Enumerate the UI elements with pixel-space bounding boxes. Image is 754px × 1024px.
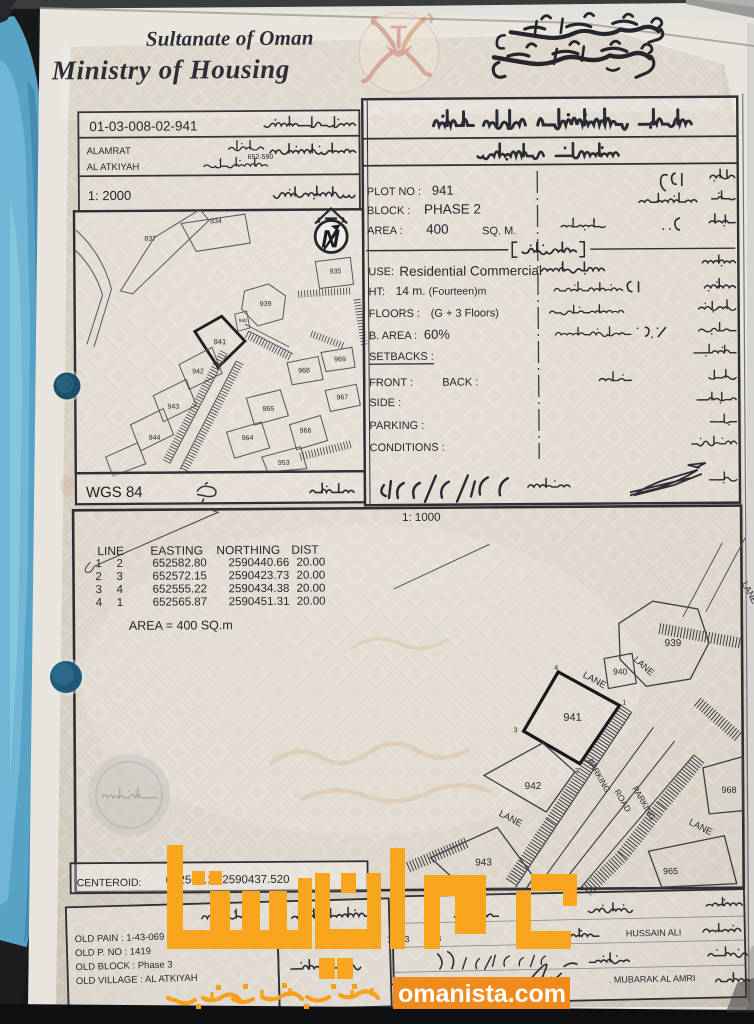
svg-text:652565.11,2590437.520: 652565.11,2590437.520 <box>166 874 290 887</box>
svg-text:PLOT NO :: PLOT NO : <box>367 186 421 198</box>
svg-text:652582.80: 652582.80 <box>152 557 206 569</box>
svg-text:935: 935 <box>330 268 342 275</box>
svg-text:2590434.38: 2590434.38 <box>229 583 290 595</box>
svg-text:968: 968 <box>298 368 310 375</box>
svg-text:941: 941 <box>432 183 454 198</box>
svg-text:SIDE :: SIDE : <box>369 397 401 409</box>
svg-text:FLOORS :: FLOORS : <box>369 308 420 320</box>
svg-text:PHASE 2: PHASE 2 <box>424 201 481 216</box>
svg-text:CONDITIONS :: CONDITIONS : <box>370 442 445 455</box>
svg-text:652565.87: 652565.87 <box>153 596 207 608</box>
svg-text:AREA = 400 SQ.m: AREA = 400 SQ.m <box>129 618 233 633</box>
svg-text:20.00: 20.00 <box>296 557 325 569</box>
svg-text:968: 968 <box>721 785 736 795</box>
svg-text:OLD P. NO : 1419: OLD P. NO : 1419 <box>75 946 151 959</box>
svg-text:SQ. M.: SQ. M. <box>482 225 516 237</box>
svg-text:939: 939 <box>260 301 272 308</box>
svg-text:652572.15: 652572.15 <box>152 570 206 582</box>
svg-text:60%: 60% <box>424 327 451 342</box>
svg-text:837: 837 <box>144 236 156 243</box>
svg-text:(G + 3 Floors): (G + 3 Floors) <box>431 307 499 319</box>
svg-text:14 m.: 14 m. <box>395 284 425 298</box>
svg-text:940: 940 <box>239 318 248 324</box>
svg-text:SETBACKS :: SETBACKS : <box>369 351 434 363</box>
svg-text:AL ATKIYAH: AL ATKIYAH <box>87 162 140 173</box>
svg-text:2590440.66: 2590440.66 <box>228 557 289 569</box>
svg-text:967: 967 <box>336 394 348 401</box>
svg-text:944: 944 <box>149 435 161 442</box>
svg-text:3: 3 <box>96 584 102 596</box>
svg-text:969: 969 <box>334 356 346 363</box>
svg-text:943: 943 <box>167 404 179 411</box>
svg-text:2590423.73: 2590423.73 <box>228 570 289 582</box>
svg-text:CENTEROID:: CENTEROID: <box>77 877 142 889</box>
svg-text:ALAMRAT: ALAMRAT <box>87 146 131 157</box>
svg-text:01-03-008-02-941: 01-03-008-02-941 <box>89 118 197 134</box>
svg-text:3: 3 <box>116 571 122 583</box>
svg-text:953: 953 <box>278 460 290 467</box>
svg-text:EASTING: EASTING <box>150 543 203 557</box>
svg-text:HT:: HT: <box>369 286 386 298</box>
svg-text:AREA :: AREA : <box>367 225 403 237</box>
svg-text:BACK :: BACK : <box>442 376 478 388</box>
svg-text:2: 2 <box>116 558 122 570</box>
svg-text:Ministry of Housing: Ministry of Housing <box>51 54 290 86</box>
svg-text:. MUBARAK AL AMRI: . MUBARAK AL AMRI <box>609 973 696 985</box>
svg-text:20.00: 20.00 <box>297 583 326 595</box>
svg-text:4: 4 <box>96 597 103 609</box>
svg-text:20.00: 20.00 <box>296 570 325 582</box>
svg-text:Sultanate of Oman: Sultanate of Oman <box>146 26 314 51</box>
svg-text:964: 964 <box>242 435 254 442</box>
svg-text:omanista.com: omanista.com <box>398 980 566 1008</box>
svg-text:941: 941 <box>214 337 227 346</box>
svg-text:652555.22: 652555.22 <box>153 583 207 595</box>
svg-text:PARKING :: PARKING : <box>369 420 424 432</box>
svg-text:400: 400 <box>426 222 449 237</box>
svg-text:652-590: 652-590 <box>248 154 274 161</box>
svg-text:FRONT :: FRONT : <box>369 377 413 389</box>
svg-text:966: 966 <box>300 428 312 435</box>
svg-text:942: 942 <box>525 781 542 792</box>
svg-text:LINE: LINE <box>97 544 124 558</box>
svg-text:NORTHING: NORTHING <box>216 543 280 557</box>
svg-text:1: 2000: 1: 2000 <box>88 188 131 203</box>
svg-text:DIST: DIST <box>291 543 319 557</box>
svg-text:939: 939 <box>665 638 682 649</box>
svg-text:1: 1 <box>95 558 101 570</box>
svg-text:HUSSAIN ALI: HUSSAIN ALI <box>626 927 682 938</box>
svg-text:834: 834 <box>210 218 222 225</box>
svg-text:941: 941 <box>563 712 581 724</box>
svg-text:1: 1000: 1: 1000 <box>402 512 440 524</box>
svg-text:Residential Commercial: Residential Commercial <box>399 263 542 279</box>
svg-text:965: 965 <box>663 866 678 876</box>
svg-text:3: 3 <box>514 727 518 734</box>
svg-text:20.00: 20.00 <box>297 596 326 608</box>
svg-text:4: 4 <box>554 665 558 672</box>
svg-text:965: 965 <box>262 406 274 413</box>
svg-text:4: 4 <box>117 584 124 596</box>
svg-text:1: 1 <box>622 699 626 706</box>
svg-text:BLOCK :: BLOCK : <box>367 205 410 217</box>
svg-text:2590451.31: 2590451.31 <box>229 596 290 608</box>
svg-text:USE:: USE: <box>368 266 394 278</box>
svg-text:(Fourteen)m: (Fourteen)m <box>429 285 487 297</box>
svg-text:943: 943 <box>475 857 492 868</box>
svg-text:942: 942 <box>192 368 204 375</box>
svg-text:B. AREA :: B. AREA : <box>369 330 417 342</box>
svg-text:1: 1 <box>117 597 123 609</box>
svg-text:940: 940 <box>613 666 628 676</box>
svg-text:WGS 84: WGS 84 <box>86 484 143 501</box>
svg-text:2: 2 <box>95 571 101 583</box>
